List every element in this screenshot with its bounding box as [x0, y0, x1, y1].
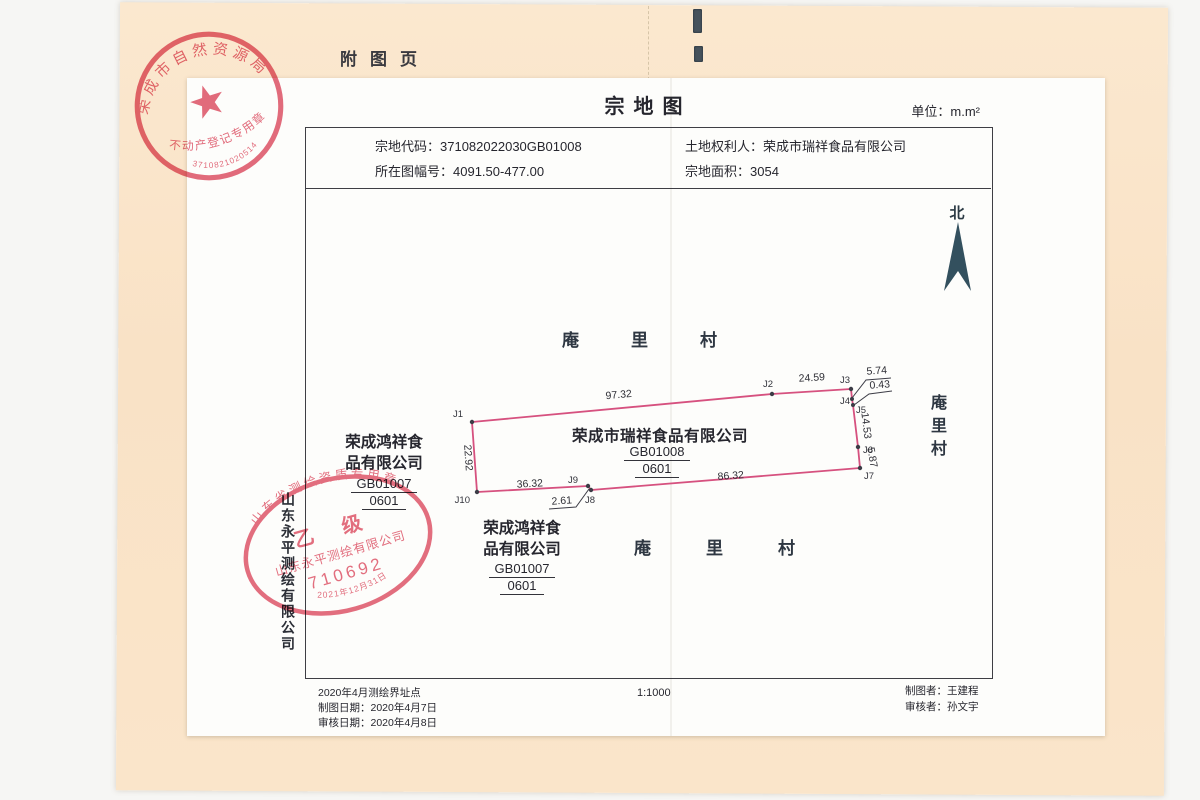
village-label-top: 庵里村 [562, 326, 769, 351]
parcel-area-field: 宗地面积：3054 [685, 161, 779, 180]
parcel-area-value: 3054 [750, 164, 779, 179]
fold-page-label: 附图页 [340, 45, 430, 70]
neighbor-code-fraction-bottom: GB01007 0601 [488, 561, 556, 595]
village-label-bottom: 庵里村 [634, 534, 850, 559]
review-date: 审核日期：2020年4月8日 [318, 715, 437, 730]
drawing-date: 制图日期：2020年4月7日 [318, 700, 437, 715]
unit-label: 单位：m.m² [850, 101, 980, 120]
village-label-right: 庵里村 [924, 394, 948, 463]
neighbor-name-line1: 荣成鸿祥食 [328, 432, 440, 453]
parcel-owner-label: 荣成市瑞祥食品有限公司 [570, 424, 750, 446]
header-divider [306, 188, 991, 189]
fold-crease [648, 6, 649, 80]
scanned-parcel-map-page: 附图页 宗地图 单位：m.m² 宗地代码：371082022030GB01008… [0, 0, 1200, 800]
land-owner-value: 荣成市瑞祥食品有限公司 [763, 139, 906, 154]
neighbor-code: GB01007 [489, 561, 556, 578]
page-title: 宗地图 [540, 90, 756, 119]
parcel-code-label: 宗地代码： [375, 139, 440, 154]
map-sheet-number-label: 所在图幅号： [375, 164, 453, 179]
parcel-code-fraction: GB01008 0601 [622, 444, 692, 478]
land-owner-label: 土地权利人： [685, 139, 763, 154]
map-scale: 1:1000 [637, 687, 671, 699]
neighbor-subcode: 0601 [500, 578, 545, 595]
stamp-purpose-arc-text: 不动产登记专用章 [165, 107, 273, 164]
neighbor-name-line2: 品有限公司 [466, 539, 578, 560]
parcel-code: GB01008 [624, 444, 691, 461]
parcel-code-field: 宗地代码：371082022030GB01008 [375, 136, 582, 155]
parcel-code-value: 371082022030GB01008 [440, 139, 582, 154]
land-owner-field: 土地权利人：荣成市瑞祥食品有限公司 [685, 136, 906, 155]
map-sheet-number-field: 所在图幅号：4091.50-477.00 [375, 161, 544, 180]
staple-mark [693, 9, 702, 33]
star-icon [187, 80, 228, 120]
reviewer-name: 审核者：孙文宇 [905, 699, 979, 714]
parcel-area-label: 宗地面积： [685, 164, 750, 179]
drafter-name: 制图者：王建程 [905, 683, 979, 698]
survey-note: 2020年4月测绘界址点 [318, 685, 421, 700]
staple-mark [694, 46, 703, 62]
stamp-purpose-text: 不动产登记专用章 [165, 107, 273, 164]
neighbor-parcel-owner-bottom: 荣成鸿祥食 品有限公司 [466, 518, 578, 560]
neighbor-name-line1: 荣成鸿祥食 [466, 518, 578, 539]
map-sheet-number-value: 4091.50-477.00 [453, 164, 544, 179]
parcel-subcode: 0601 [635, 461, 680, 478]
